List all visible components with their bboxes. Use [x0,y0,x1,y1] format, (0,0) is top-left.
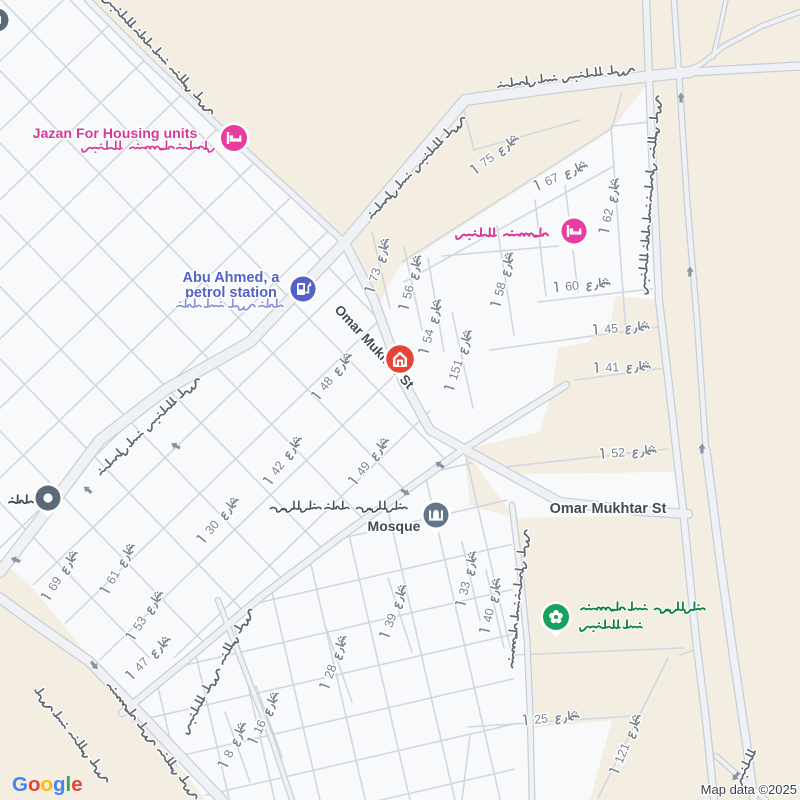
svg-text:45: 45 [604,321,619,336]
svg-text:60: 60 [564,278,579,293]
svg-text:Abu Ahmed, a: Abu Ahmed, a [183,270,281,286]
svg-text:Omar Mukhtar St: Omar Mukhtar St [550,501,667,517]
svg-text:25: 25 [533,711,548,726]
svg-text:52: 52 [611,445,626,460]
svg-text:62: 62 [600,207,617,224]
svg-text:Google: Google [12,773,83,796]
svg-text:41: 41 [605,360,620,375]
svg-text:Map data ©2025: Map data ©2025 [701,782,797,797]
svg-text:Mosque: Mosque [368,518,421,534]
